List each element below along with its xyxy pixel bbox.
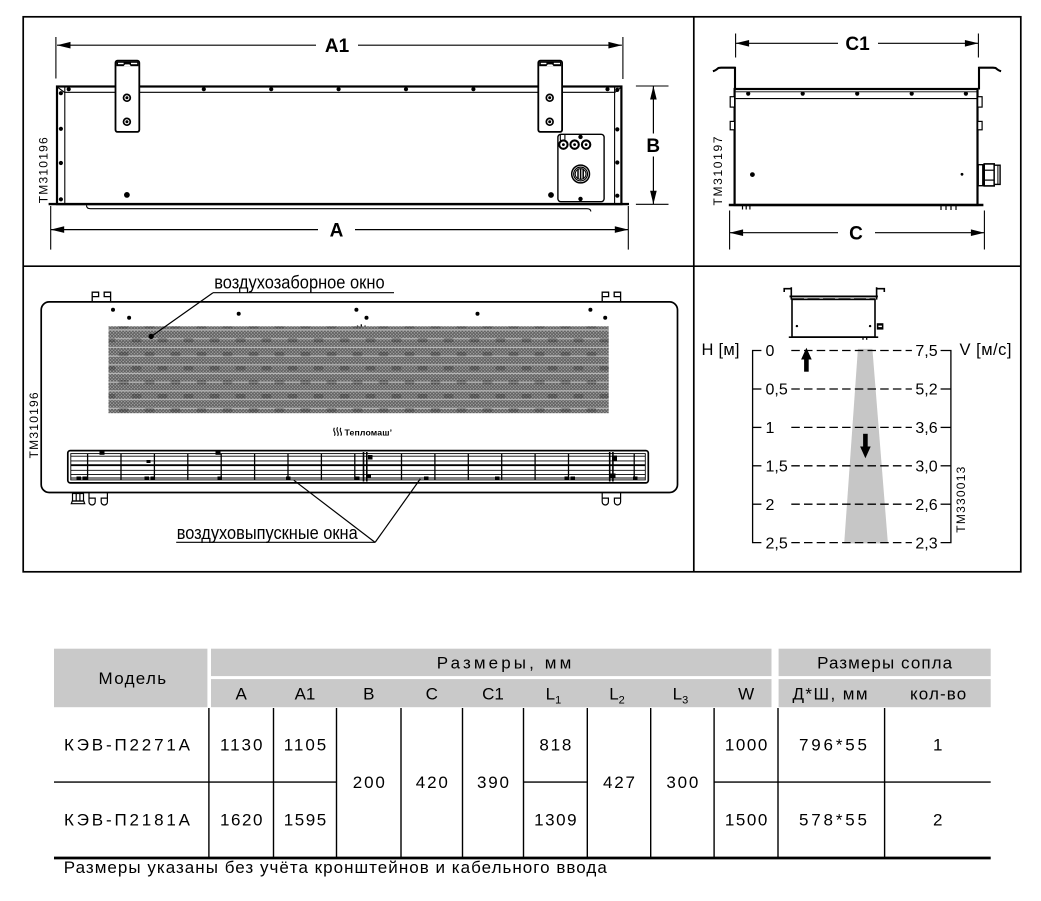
svg-text:1105: 1105	[284, 736, 327, 755]
svg-text:КЭВ-П2271А: КЭВ-П2271А	[64, 736, 191, 755]
svg-text:2,3: 2,3	[915, 535, 937, 552]
svg-text:Размеры сопла: Размеры сопла	[817, 654, 953, 673]
svg-text:C: C	[426, 684, 438, 703]
svg-text:2: 2	[766, 497, 775, 514]
svg-text:1595: 1595	[284, 810, 327, 829]
svg-text:1: 1	[933, 736, 942, 755]
svg-text:C1: C1	[845, 34, 870, 55]
svg-text:0,5: 0,5	[766, 382, 788, 399]
svg-text:300: 300	[666, 773, 698, 792]
svg-text:2,5: 2,5	[766, 535, 788, 552]
svg-text:TM310196: TM310196	[27, 392, 41, 458]
svg-text:W: W	[738, 684, 754, 703]
svg-text:Д*Ш, мм: Д*Ш, мм	[793, 684, 868, 703]
svg-text:TM310196: TM310196	[37, 137, 51, 203]
svg-text:воздухозаборное окно: воздухозаборное окно	[214, 273, 384, 293]
svg-text:TM310197: TM310197	[711, 136, 725, 205]
svg-text:7,5: 7,5	[915, 343, 937, 360]
svg-text:1130: 1130	[220, 736, 263, 755]
svg-text:1309: 1309	[534, 810, 577, 829]
svg-text:2,6: 2,6	[915, 497, 937, 514]
svg-text:H [м]: H [м]	[702, 341, 740, 359]
svg-text:3,0: 3,0	[915, 459, 937, 476]
svg-text:Размеры, мм: Размеры, мм	[437, 654, 572, 673]
svg-text:A1: A1	[325, 36, 350, 57]
svg-text:420: 420	[416, 773, 448, 792]
svg-text:Тепломаш’: Тепломаш’	[345, 427, 393, 437]
svg-text:1: 1	[766, 420, 775, 437]
svg-text:5,2: 5,2	[915, 382, 937, 399]
svg-text:Размеры указаны без учёта крон: Размеры указаны без учёта кронштейнов и …	[64, 858, 608, 877]
svg-text:200: 200	[353, 773, 385, 792]
svg-text:C1: C1	[482, 684, 504, 703]
svg-text:TM330013: TM330013	[954, 466, 968, 532]
svg-text:кол-во: кол-во	[910, 684, 966, 703]
svg-text:воздуховыпускные окна: воздуховыпускные окна	[177, 523, 359, 543]
svg-text:A: A	[236, 684, 248, 703]
svg-text:1000: 1000	[725, 736, 768, 755]
svg-text:1620: 1620	[220, 810, 263, 829]
svg-text:B: B	[646, 136, 660, 157]
svg-text:V [м/с]: V [м/с]	[960, 341, 1012, 359]
svg-text:0: 0	[766, 343, 775, 360]
svg-text:3,6: 3,6	[915, 420, 937, 437]
svg-text:818: 818	[539, 736, 571, 755]
svg-text:796*55: 796*55	[799, 736, 867, 755]
svg-text:B: B	[363, 684, 374, 703]
svg-text:390: 390	[477, 773, 509, 792]
svg-text:A: A	[330, 220, 344, 241]
svg-text:1,5: 1,5	[766, 459, 788, 476]
svg-text:427: 427	[603, 773, 635, 792]
svg-text:578*55: 578*55	[799, 810, 867, 829]
svg-text:C: C	[849, 224, 863, 245]
svg-text:A1: A1	[295, 684, 316, 703]
svg-text:1500: 1500	[725, 810, 768, 829]
svg-text:2: 2	[933, 810, 942, 829]
svg-text:КЭВ-П2181А: КЭВ-П2181А	[64, 810, 191, 829]
